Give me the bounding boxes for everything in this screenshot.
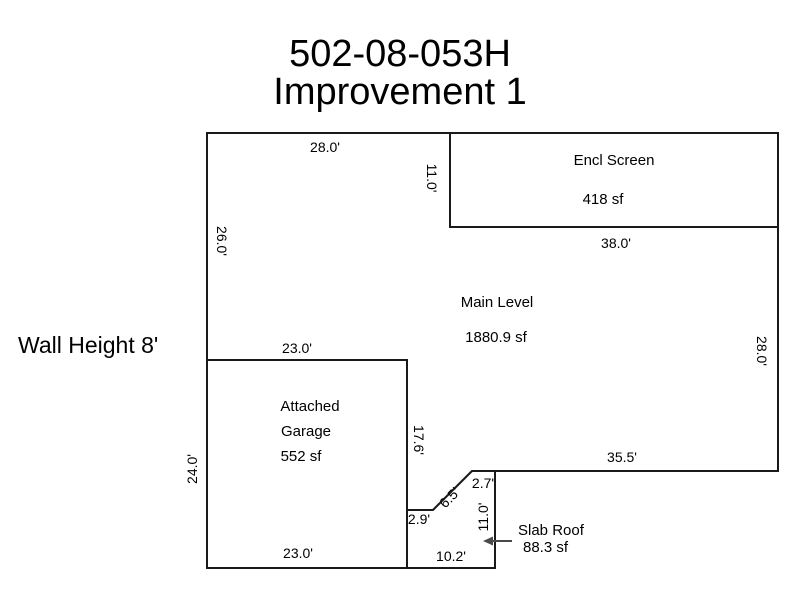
dim-encl-screen-left: 11.0' (424, 164, 440, 193)
wall-height-label: Wall Height 8' (18, 332, 158, 358)
slab-roof-name: Slab Roof (518, 522, 585, 539)
encl-screen-name: Encl Screen (574, 152, 655, 169)
main-level-name: Main Level (461, 294, 534, 311)
dim-main-top: 28.0' (310, 139, 340, 155)
parcel-number-title: 502-08-053H (289, 33, 511, 75)
improvement-title: Improvement 1 (273, 71, 526, 113)
encl-screen-outline (450, 133, 778, 227)
dim-notch-horizontal: 2.9' (408, 511, 430, 527)
garage-name-line2: Garage (281, 423, 331, 440)
main-level-area: 1880.9 sf (465, 329, 528, 346)
property-sketch-canvas: 502-08-053H Improvement 1 Wall Height 8'… (0, 0, 800, 600)
dim-slab-top: 2.7' (472, 475, 494, 491)
slab-roof-area: 88.3 sf (523, 539, 569, 556)
dim-encl-screen-bottom: 38.0' (601, 235, 631, 251)
improvement-sketch: 502-08-053H Improvement 1 Wall Height 8'… (0, 0, 800, 600)
dim-main-bottom: 35.5' (607, 449, 637, 465)
garage-area: 552 sf (281, 448, 323, 465)
dim-garage-top: 23.0' (282, 340, 312, 356)
dim-garage-right: 17.6' (411, 425, 427, 455)
dim-main-left: 26.0' (214, 226, 230, 256)
dim-garage-bottom: 23.0' (283, 545, 313, 561)
encl-screen-area: 418 sf (583, 191, 625, 208)
dim-main-right: 28.0' (754, 336, 770, 366)
dim-slab-right: 11.0' (475, 503, 491, 532)
dim-garage-left: 24.0' (184, 454, 200, 484)
dim-slab-bottom: 10.2' (436, 548, 466, 564)
garage-name-line1: Attached (280, 398, 339, 415)
